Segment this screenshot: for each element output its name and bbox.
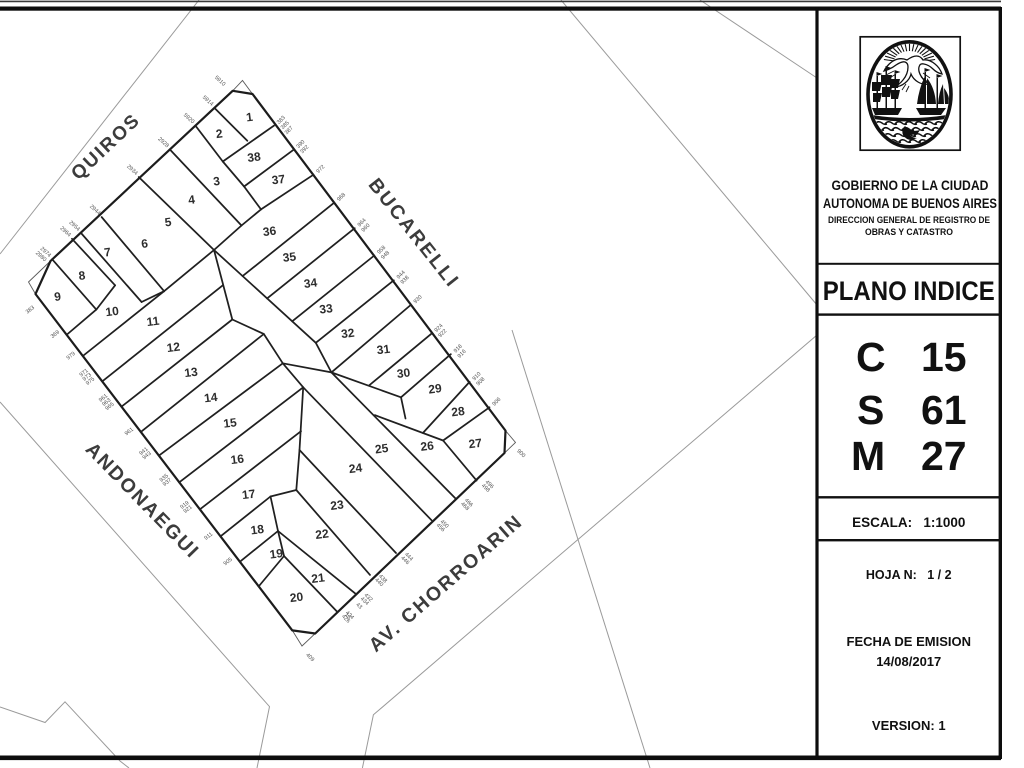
svg-text:11: 11 — [146, 314, 161, 329]
svg-text:20: 20 — [289, 589, 304, 605]
svg-text:38: 38 — [247, 149, 262, 165]
svg-text:27: 27 — [921, 433, 967, 479]
svg-text:DIRECCION GENERAL DE REGISTRO: DIRECCION GENERAL DE REGISTRO DE — [828, 215, 990, 225]
svg-text:S: S — [857, 387, 884, 433]
svg-text:27: 27 — [468, 436, 483, 452]
svg-text:15: 15 — [223, 415, 238, 431]
svg-text:10: 10 — [105, 304, 120, 320]
svg-text:32: 32 — [340, 326, 355, 342]
svg-text:AUTONOMA DE BUENOS AIRES: AUTONOMA DE BUENOS AIRES — [823, 196, 997, 211]
svg-text:28: 28 — [451, 404, 466, 420]
svg-text:13: 13 — [184, 365, 199, 381]
svg-text:34: 34 — [303, 275, 318, 291]
svg-text:PLANO INDICE: PLANO INDICE — [823, 276, 995, 306]
svg-text:VERSION: 1: VERSION: 1 — [872, 718, 946, 733]
svg-text:18: 18 — [250, 522, 265, 538]
svg-text:21: 21 — [311, 570, 326, 586]
svg-text:29: 29 — [428, 381, 443, 397]
svg-text:M: M — [851, 433, 885, 479]
svg-text:GOBIERNO DE LA CIUDAD: GOBIERNO DE LA CIUDAD — [832, 178, 989, 193]
svg-text:37: 37 — [271, 172, 286, 188]
svg-text:12: 12 — [166, 339, 181, 355]
svg-text:15: 15 — [921, 334, 967, 380]
svg-text:19: 19 — [269, 546, 284, 562]
svg-text:35: 35 — [282, 249, 297, 265]
svg-text:25: 25 — [374, 441, 389, 457]
svg-text:HOJA N: 1 / 2: HOJA N: 1 / 2 — [866, 568, 952, 582]
svg-text:30: 30 — [396, 365, 411, 381]
svg-text:36: 36 — [262, 223, 277, 239]
svg-text:14: 14 — [203, 390, 218, 406]
svg-text:OBRAS Y CATASTRO: OBRAS Y CATASTRO — [865, 227, 953, 237]
svg-text:14/08/2017: 14/08/2017 — [876, 654, 941, 669]
svg-text:FECHA DE EMISION: FECHA DE EMISION — [847, 634, 971, 649]
svg-text:C: C — [856, 334, 886, 380]
svg-text:31: 31 — [376, 342, 391, 358]
svg-text:26: 26 — [420, 438, 435, 454]
svg-text:16: 16 — [230, 451, 245, 467]
svg-text:33: 33 — [319, 301, 334, 317]
svg-text:23: 23 — [330, 497, 345, 513]
svg-text:17: 17 — [241, 487, 256, 503]
svg-text:24: 24 — [348, 460, 363, 476]
svg-text:61: 61 — [921, 387, 967, 433]
svg-text:22: 22 — [315, 526, 330, 542]
svg-text:ESCALA: 1:1000: ESCALA: 1:1000 — [852, 515, 965, 530]
